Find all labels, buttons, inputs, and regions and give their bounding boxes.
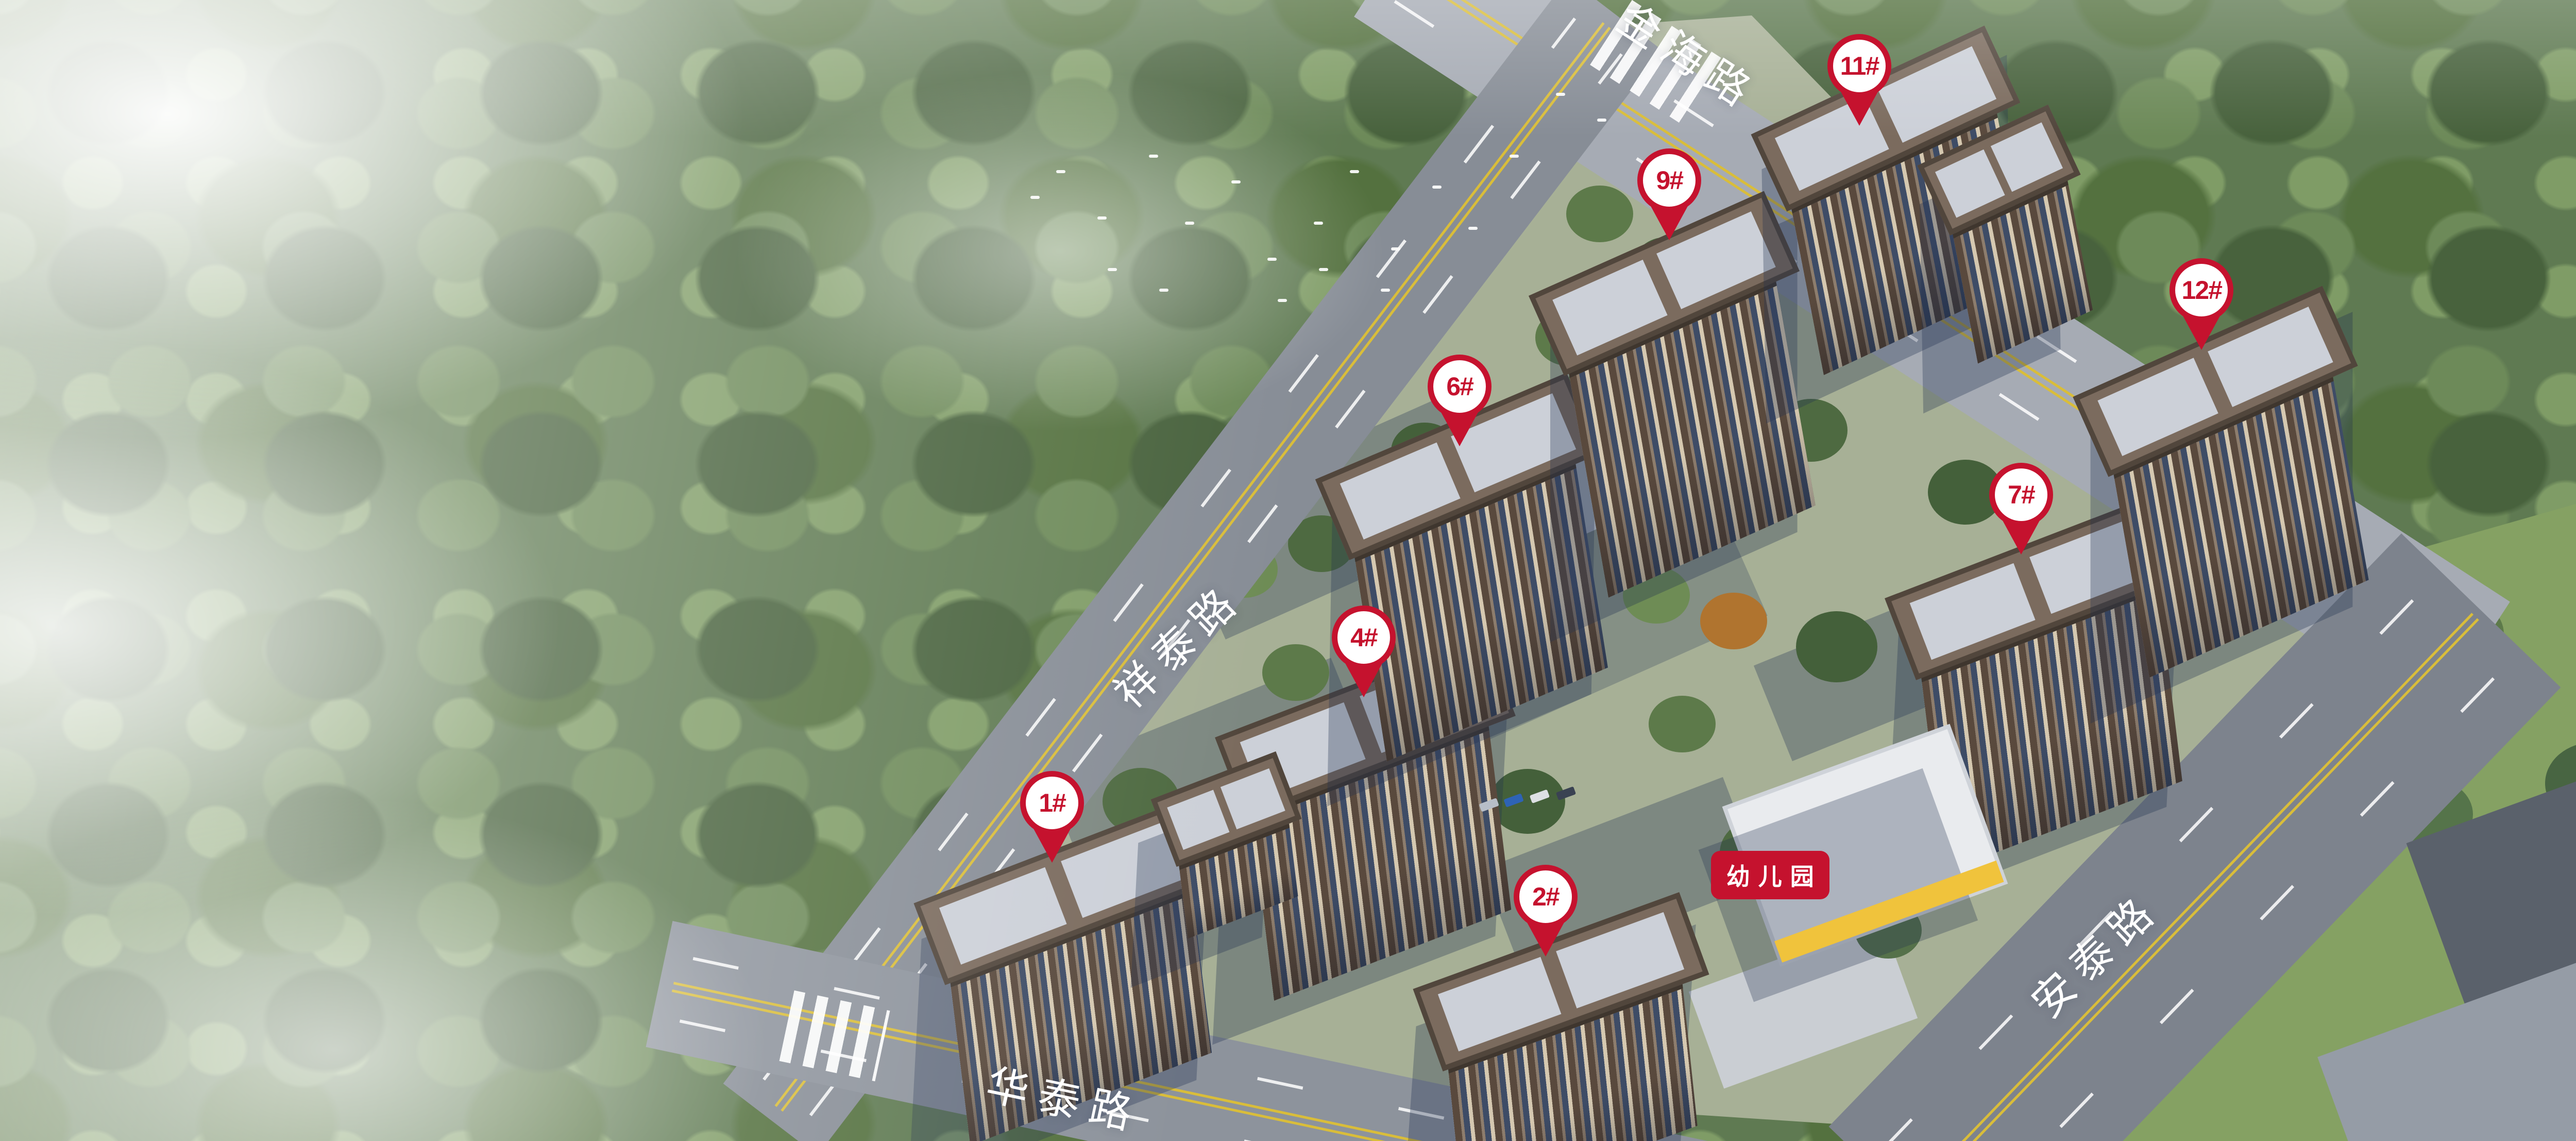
- pin-label: 12#: [2182, 275, 2222, 305]
- pin-circle: 11#: [1827, 34, 1891, 98]
- building-pin-7: 7#: [1989, 463, 2053, 558]
- pin-circle: 2#: [1514, 865, 1578, 929]
- pin-label: 9#: [1656, 165, 1683, 195]
- building-pin-11: 11#: [1827, 34, 1891, 129]
- pin-circle: 1#: [1020, 771, 1084, 835]
- building-pin-12: 12#: [2170, 258, 2233, 353]
- pin-circle: 9#: [1637, 148, 1701, 212]
- kindergarten-badge: 幼儿园: [1711, 851, 1829, 899]
- building-pin-4: 4#: [1332, 606, 1396, 700]
- pin-label: 2#: [1532, 882, 1559, 912]
- pin-label: 11#: [1840, 51, 1879, 81]
- pin-label: 7#: [2008, 480, 2035, 510]
- roof-slab: [1221, 768, 1285, 829]
- pin-circle: 4#: [1332, 606, 1396, 669]
- building-pin-6: 6#: [1428, 355, 1492, 449]
- roof-slab: [1167, 790, 1230, 850]
- pin-label: 6#: [1446, 372, 1473, 401]
- pin-circle: 6#: [1428, 355, 1492, 418]
- roof-slab: [1991, 122, 2063, 192]
- pin-label: 4#: [1350, 623, 1377, 652]
- pin-label: 1#: [1039, 788, 1065, 818]
- pin-circle: 12#: [2170, 258, 2233, 322]
- building-pin-2: 2#: [1514, 865, 1578, 960]
- roof-slab: [1935, 149, 2005, 218]
- pin-circle: 7#: [1989, 463, 2053, 527]
- building-pin-9: 9#: [1637, 148, 1701, 243]
- building-pin-1: 1#: [1020, 771, 1084, 866]
- flying-birds: [1030, 196, 1040, 199]
- aerial-rendering: 1#2#4#6#7#9#11#12# 金海路祥泰路安泰路华泰路 幼儿园 鸟瞰图: [0, 0, 2576, 1141]
